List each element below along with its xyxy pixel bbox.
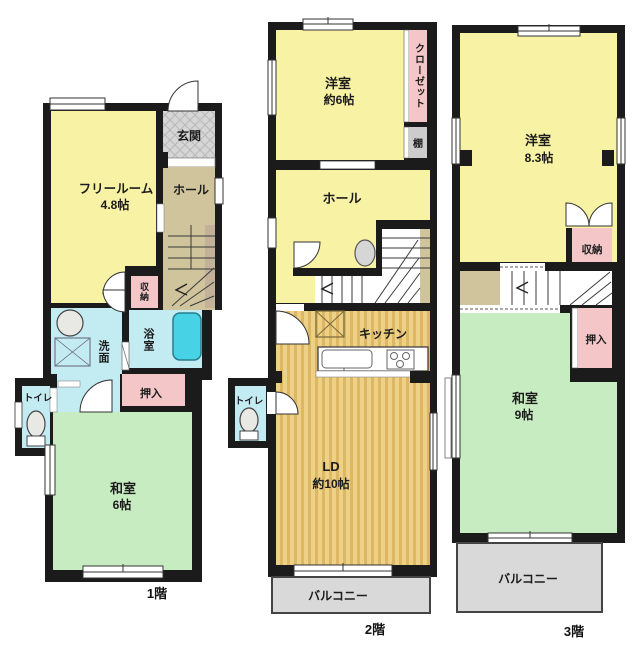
room-size-yoshitsu-3f: 8.3帖 (525, 150, 554, 165)
room-label-kitchen: キッチン (359, 327, 407, 341)
room-label-hall-2f: ホール (322, 191, 361, 206)
room-label-hall-1f: ホール (173, 183, 209, 197)
floor-plan: フリールーム 4.8帖 玄関 ホール 収納 浴室 洗面 トイレ 押入 和室 6帖… (0, 0, 643, 651)
room-ld (276, 377, 430, 565)
floor-label-3f: 3階 (564, 624, 584, 639)
room-label-shuno-3f: 収納 (582, 243, 603, 256)
room-size-washitsu-3f: 9帖 (515, 407, 534, 422)
room-label-oshiire-1f: 押入 (140, 386, 162, 400)
floor-3: 洋室 8.3帖 収納 押入 和室 9帖 バルコニー 3階 (445, 24, 625, 639)
doorway (267, 392, 276, 414)
closet-door (404, 30, 409, 122)
floor-2: 洋室 約6帖 クローゼット 棚 ホール キッチン トイレ LD 約10帖 バルコ… (228, 17, 437, 637)
room-size-yoshitsu-2f: 約6帖 (324, 92, 355, 107)
wall (125, 266, 131, 308)
room-size-ld: 約10帖 (312, 476, 349, 491)
room-label-ld: LD (322, 459, 339, 474)
room-label-tana: 棚 (413, 137, 423, 150)
water-heater-icon (57, 310, 83, 336)
toilet-icon-2f (240, 408, 258, 440)
wall (156, 152, 168, 168)
wall (268, 371, 282, 383)
room-washitsu-3f-ext (570, 382, 617, 533)
room-size-free-room: 4.8帖 (101, 197, 130, 212)
floor-label-1f: 1階 (147, 586, 167, 601)
room-label-closet: クローゼット (413, 43, 425, 109)
wall (410, 371, 437, 383)
room-label-bath: 浴室 (142, 327, 155, 352)
window (320, 161, 375, 169)
floor-label-2f: 2階 (365, 622, 385, 637)
stove-icon (387, 350, 414, 369)
balcony-label-3f: バルコニー (498, 572, 558, 586)
toilet-icon-1f (27, 411, 45, 446)
room-label-washitsu-1f: 和室 (110, 481, 136, 496)
oshiire-door-3f (572, 308, 578, 368)
room-label-shuno-1f: 収納 (139, 281, 150, 302)
sink-icon (322, 350, 372, 368)
room-label-genkan: 玄関 (177, 128, 201, 143)
shelf-door (404, 127, 409, 158)
room-label-toilet-2f: トイレ (235, 396, 264, 407)
room-label-oshiire-3f: 押入 (586, 333, 607, 346)
stair-landing-3f (460, 271, 500, 305)
floor-1: フリールーム 4.8帖 玄関 ホール 収納 浴室 洗面 トイレ 押入 和室 6帖… (15, 81, 223, 601)
room-label-yoshitsu-3f: 洋室 (525, 133, 551, 148)
room-label-yoshitsu-2f: 洋室 (325, 76, 351, 91)
balcony-label-2f: バルコニー (308, 589, 368, 603)
toilet-icon-2f-hall (355, 240, 375, 266)
room-washitsu-3f (460, 313, 570, 533)
bathtub (173, 313, 201, 360)
room-size-washitsu-1f: 6帖 (113, 497, 132, 512)
doorway (276, 304, 304, 311)
room-label-toilet-1f: トイレ (24, 393, 53, 404)
wall (566, 228, 572, 262)
genkan-step (163, 158, 215, 167)
room-label-senmen: 洗面 (97, 339, 110, 364)
entrance-door-arc (168, 81, 198, 111)
floor-plan-canvas: フリールーム 4.8帖 玄関 ホール 収納 浴室 洗面 トイレ 押入 和室 6帖… (0, 0, 643, 651)
room-label-free-room: フリールーム (79, 182, 154, 196)
room-label-washitsu-3f: 和室 (512, 391, 538, 406)
